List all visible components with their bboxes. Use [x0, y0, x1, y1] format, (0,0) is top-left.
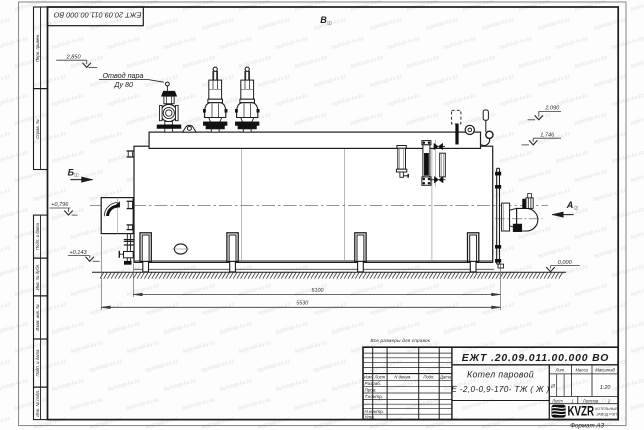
svg-text:teplolab-kv.kz: teplolab-kv.kz — [462, 283, 496, 298]
svg-text:+0,796: +0,796 — [51, 202, 69, 208]
svg-text:teplolab-kv.kz: teplolab-kv.kz — [313, 74, 347, 89]
svg-text:А: А — [566, 200, 574, 210]
svg-text:teplolab-kv.kz: teplolab-kv.kz — [257, 74, 291, 89]
svg-text:teplolab-kv.kz: teplolab-kv.kz — [0, 207, 29, 222]
svg-text:teplolab-kv.kz: teplolab-kv.kz — [70, 226, 104, 241]
svg-text:Пров.: Пров. — [365, 388, 377, 393]
svg-text:teplolab-kv.kz: teplolab-kv.kz — [294, 397, 328, 412]
svg-text:teplolab-kv.kz: teplolab-kv.kz — [462, 397, 496, 412]
svg-text:teplolab-kv.kz: teplolab-kv.kz — [145, 17, 179, 32]
svg-text:teplolab-kv.kz: teplolab-kv.kz — [294, 55, 328, 70]
svg-text:teplolab-kv.kz: teplolab-kv.kz — [462, 112, 496, 127]
svg-text:⑵: ⑵ — [574, 204, 579, 211]
svg-text:teplolab-kv.kz: teplolab-kv.kz — [350, 55, 384, 70]
svg-text:teplolab-kv.kz: teplolab-kv.kz — [0, 93, 29, 108]
svg-text:teplolab-kv.kz: teplolab-kv.kz — [369, 302, 403, 317]
svg-text:Котел паровой: Котел паровой — [467, 370, 534, 380]
svg-text:teplolab-kv.kz: teplolab-kv.kz — [238, 340, 272, 355]
svg-text:teplolab-kv.kz: teplolab-kv.kz — [51, 264, 85, 279]
svg-text:teplolab-kv.kz: teplolab-kv.kz — [630, 169, 644, 184]
svg-text:Е -2,0-0,9-170- ТЖ ( Ж ): Е -2,0-0,9-170- ТЖ ( Ж ) — [451, 385, 549, 394]
svg-text:teplolab-kv.kz: teplolab-kv.kz — [89, 245, 123, 260]
svg-text:teplolab-kv.kz: teplolab-kv.kz — [518, 169, 552, 184]
svg-text:teplolab-kv.kz: teplolab-kv.kz — [70, 340, 104, 355]
svg-text:teplolab-kv.kz: teplolab-kv.kz — [0, 416, 11, 430]
svg-text:teplolab-kv.kz: teplolab-kv.kz — [0, 74, 11, 89]
svg-text:teplolab-kv.kz: teplolab-kv.kz — [70, 283, 104, 298]
svg-text:teplolab-kv.kz: teplolab-kv.kz — [593, 17, 627, 32]
svg-text:teplolab-kv.kz: teplolab-kv.kz — [425, 416, 459, 430]
svg-text:ЗАВОД РЭП: ЗАВОД РЭП — [596, 412, 617, 416]
svg-text:teplolab-kv.kz: teplolab-kv.kz — [555, 36, 589, 51]
svg-text:teplolab-kv.kz: teplolab-kv.kz — [630, 283, 644, 298]
svg-text:teplolab-kv.kz: teplolab-kv.kz — [201, 17, 235, 32]
svg-text:teplolab-kv.kz: teplolab-kv.kz — [331, 321, 365, 336]
svg-text:teplolab-kv.kz: teplolab-kv.kz — [70, 112, 104, 127]
svg-text:teplolab-kv.kz: teplolab-kv.kz — [33, 188, 67, 203]
svg-text:teplolab-kv.kz: teplolab-kv.kz — [555, 378, 589, 393]
svg-text:teplolab-kv.kz: teplolab-kv.kz — [89, 359, 123, 374]
svg-text:teplolab-kv.kz: teplolab-kv.kz — [294, 112, 328, 127]
svg-text:teplolab-kv.kz: teplolab-kv.kz — [0, 359, 11, 374]
svg-text:teplolab-kv.kz: teplolab-kv.kz — [555, 93, 589, 108]
svg-text:teplolab-kv.kz: teplolab-kv.kz — [518, 283, 552, 298]
svg-text:teplolab-kv.kz: teplolab-kv.kz — [406, 112, 440, 127]
svg-text:teplolab-kv.kz: teplolab-kv.kz — [182, 55, 216, 70]
svg-text:Ду 80: Ду 80 — [113, 80, 133, 89]
svg-text:teplolab-kv.kz: teplolab-kv.kz — [537, 416, 571, 430]
svg-text:teplolab-kv.kz: teplolab-kv.kz — [387, 36, 421, 51]
svg-text:teplolab-kv.kz: teplolab-kv.kz — [537, 74, 571, 89]
svg-text:Лист: Лист — [551, 398, 563, 403]
svg-text:teplolab-kv.kz: teplolab-kv.kz — [425, 359, 459, 374]
svg-text:Подп. и дата: Подп. и дата — [35, 223, 40, 251]
svg-text:teplolab-kv.kz: teplolab-kv.kz — [201, 302, 235, 317]
svg-text:Все размеры для справок: Все размеры для справок — [371, 338, 431, 343]
svg-text:teplolab-kv.kz: teplolab-kv.kz — [574, 169, 608, 184]
svg-text:teplolab-kv.kz: teplolab-kv.kz — [238, 55, 272, 70]
svg-text:teplolab-kv.kz: teplolab-kv.kz — [387, 93, 421, 108]
svg-text:Масса: Масса — [576, 368, 589, 373]
svg-text:teplolab-kv.kz: teplolab-kv.kz — [145, 74, 179, 89]
svg-text:1,746: 1,746 — [540, 132, 555, 138]
svg-text:teplolab-kv.kz: teplolab-kv.kz — [481, 302, 515, 317]
svg-text:teplolab-kv.kz: teplolab-kv.kz — [611, 378, 644, 393]
svg-text:teplolab-kv.kz: teplolab-kv.kz — [481, 17, 515, 32]
svg-text:И: И — [551, 384, 555, 390]
svg-text:teplolab-kv.kz: teplolab-kv.kz — [219, 264, 253, 279]
svg-text:ЕЖТ .20.09.011.00.000 ВО: ЕЖТ .20.09.011.00.000 ВО — [462, 353, 609, 364]
svg-text:Утв.: Утв. — [365, 415, 375, 420]
svg-text:teplolab-kv.kz: teplolab-kv.kz — [387, 321, 421, 336]
svg-text:teplolab-kv.kz: teplolab-kv.kz — [126, 112, 160, 127]
svg-text:KVZR: KVZR — [568, 403, 595, 418]
svg-text:teplolab-kv.kz: teplolab-kv.kz — [201, 359, 235, 374]
svg-text:teplolab-kv.kz: teplolab-kv.kz — [499, 321, 533, 336]
svg-text:teplolab-kv.kz: teplolab-kv.kz — [331, 378, 365, 393]
svg-text:teplolab-kv.kz: teplolab-kv.kz — [611, 321, 644, 336]
svg-text:teplolab-kv.kz: teplolab-kv.kz — [0, 131, 11, 146]
svg-text:teplolab-kv.kz: teplolab-kv.kz — [294, 340, 328, 355]
svg-text:teplolab-kv.kz: teplolab-kv.kz — [51, 36, 85, 51]
svg-text:teplolab-kv.kz: teplolab-kv.kz — [163, 378, 197, 393]
svg-text:2,850: 2,850 — [66, 54, 82, 60]
svg-text:teplolab-kv.kz: teplolab-kv.kz — [481, 416, 515, 430]
svg-text:teplolab-kv.kz: teplolab-kv.kz — [145, 359, 179, 374]
svg-text:teplolab-kv.kz: teplolab-kv.kz — [350, 283, 384, 298]
svg-text:teplolab-kv.kz: teplolab-kv.kz — [0, 378, 29, 393]
svg-text:teplolab-kv.kz: teplolab-kv.kz — [443, 321, 477, 336]
svg-text:teplolab-kv.kz: teplolab-kv.kz — [406, 55, 440, 70]
svg-text:teplolab-kv.kz: teplolab-kv.kz — [219, 321, 253, 336]
svg-text:teplolab-kv.kz: teplolab-kv.kz — [518, 55, 552, 70]
svg-text:Дата: Дата — [439, 375, 452, 380]
svg-text:Справ. №: Справ. № — [35, 119, 40, 139]
svg-text:teplolab-kv.kz: teplolab-kv.kz — [0, 302, 11, 317]
svg-text:teplolab-kv.kz: teplolab-kv.kz — [89, 302, 123, 317]
svg-text:teplolab-kv.kz: teplolab-kv.kz — [182, 283, 216, 298]
svg-text:Подп. и дата: Подп. и дата — [35, 349, 40, 377]
svg-text:teplolab-kv.kz: teplolab-kv.kz — [555, 321, 589, 336]
svg-text:teplolab-kv.kz: teplolab-kv.kz — [313, 359, 347, 374]
svg-text:teplolab-kv.kz: teplolab-kv.kz — [630, 55, 644, 70]
svg-text:teplolab-kv.kz: teplolab-kv.kz — [518, 112, 552, 127]
svg-text:Инв. № подл.: Инв. № подл. — [35, 390, 40, 417]
svg-text:teplolab-kv.kz: teplolab-kv.kz — [219, 36, 253, 51]
svg-text:Лист: Лист — [374, 375, 386, 380]
svg-text:teplolab-kv.kz: teplolab-kv.kz — [126, 55, 160, 70]
svg-text:teplolab-kv.kz: teplolab-kv.kz — [0, 36, 29, 51]
svg-text:teplolab-kv.kz: teplolab-kv.kz — [201, 416, 235, 430]
svg-text:+0,143: +0,143 — [69, 250, 87, 256]
svg-text:5100: 5100 — [312, 288, 324, 294]
svg-text:Разраб.: Разраб. — [365, 381, 382, 386]
svg-text:teplolab-kv.kz: teplolab-kv.kz — [537, 245, 571, 260]
svg-text:teplolab-kv.kz: teplolab-kv.kz — [0, 150, 29, 165]
svg-text:teplolab-kv.kz: teplolab-kv.kz — [630, 112, 644, 127]
svg-text:teplolab-kv.kz: teplolab-kv.kz — [182, 397, 216, 412]
svg-text:teplolab-kv.kz: teplolab-kv.kz — [425, 17, 459, 32]
svg-text:teplolab-kv.kz: teplolab-kv.kz — [275, 264, 309, 279]
svg-text:teplolab-kv.kz: teplolab-kv.kz — [443, 93, 477, 108]
svg-text:teplolab-kv.kz: teplolab-kv.kz — [275, 321, 309, 336]
svg-text:teplolab-kv.kz: teplolab-kv.kz — [107, 321, 141, 336]
svg-text:1:20: 1:20 — [600, 385, 611, 391]
svg-text:teplolab-kv.kz: teplolab-kv.kz — [126, 397, 160, 412]
svg-text:teplolab-kv.kz: teplolab-kv.kz — [574, 283, 608, 298]
svg-text:teplolab-kv.kz: teplolab-kv.kz — [145, 302, 179, 317]
svg-text:teplolab-kv.kz: teplolab-kv.kz — [182, 340, 216, 355]
svg-text:teplolab-kv.kz: teplolab-kv.kz — [611, 207, 644, 222]
svg-text:teplolab-kv.kz: teplolab-kv.kz — [107, 378, 141, 393]
svg-text:teplolab-kv.kz: teplolab-kv.kz — [611, 36, 644, 51]
svg-text:Подп.: Подп. — [423, 375, 434, 380]
svg-text:teplolab-kv.kz: teplolab-kv.kz — [369, 74, 403, 89]
svg-text:teplolab-kv.kz: teplolab-kv.kz — [537, 17, 571, 32]
svg-text:Формат А3: Формат А3 — [570, 422, 604, 429]
svg-text:teplolab-kv.kz: teplolab-kv.kz — [313, 416, 347, 430]
svg-text:teplolab-kv.kz: teplolab-kv.kz — [275, 378, 309, 393]
svg-text:teplolab-kv.kz: teplolab-kv.kz — [275, 36, 309, 51]
svg-text:Отвод пара: Отвод пара — [102, 71, 143, 80]
svg-text:teplolab-kv.kz: teplolab-kv.kz — [238, 283, 272, 298]
svg-text:teplolab-kv.kz: teplolab-kv.kz — [331, 93, 365, 108]
svg-text:teplolab-kv.kz: teplolab-kv.kz — [593, 74, 627, 89]
svg-text:teplolab-kv.kz: teplolab-kv.kz — [611, 150, 644, 165]
svg-text:teplolab-kv.kz: teplolab-kv.kz — [499, 93, 533, 108]
svg-text:teplolab-kv.kz: teplolab-kv.kz — [574, 112, 608, 127]
svg-text:teplolab-kv.kz: teplolab-kv.kz — [126, 340, 160, 355]
svg-text:Инв. № дубл.: Инв. № дубл. — [35, 264, 40, 290]
svg-text:Изм: Изм — [364, 375, 372, 380]
svg-text:teplolab-kv.kz: teplolab-kv.kz — [257, 17, 291, 32]
svg-text:teplolab-kv.kz: teplolab-kv.kz — [275, 93, 309, 108]
svg-text:teplolab-kv.kz: teplolab-kv.kz — [574, 226, 608, 241]
svg-text:teplolab-kv.kz: teplolab-kv.kz — [499, 36, 533, 51]
svg-text:teplolab-kv.kz: teplolab-kv.kz — [257, 416, 291, 430]
svg-text:teplolab-kv.kz: teplolab-kv.kz — [537, 302, 571, 317]
svg-text:teplolab-kv.kz: teplolab-kv.kz — [593, 302, 627, 317]
svg-text:teplolab-kv.kz: teplolab-kv.kz — [481, 74, 515, 89]
svg-text:teplolab-kv.kz: teplolab-kv.kz — [630, 340, 644, 355]
svg-text:teplolab-kv.kz: teplolab-kv.kz — [593, 188, 627, 203]
svg-text:2,090: 2,090 — [544, 106, 560, 112]
svg-text:teplolab-kv.kz: teplolab-kv.kz — [107, 36, 141, 51]
svg-text:teplolab-kv.kz: teplolab-kv.kz — [257, 359, 291, 374]
svg-text:teplolab-kv.kz: teplolab-kv.kz — [443, 36, 477, 51]
svg-text:N докум.: N докум. — [394, 375, 411, 380]
svg-text:teplolab-kv.kz: teplolab-kv.kz — [257, 302, 291, 317]
svg-text:teplolab-kv.kz: teplolab-kv.kz — [70, 397, 104, 412]
svg-text:5530: 5530 — [296, 301, 308, 307]
svg-text:teplolab-kv.kz: teplolab-kv.kz — [518, 397, 552, 412]
svg-text:teplolab-kv.kz: teplolab-kv.kz — [425, 74, 459, 89]
svg-text:Н.контр.: Н.контр. — [365, 409, 384, 414]
svg-text:⑵: ⑵ — [327, 19, 332, 26]
svg-text:teplolab-kv.kz: teplolab-kv.kz — [0, 264, 29, 279]
svg-text:teplolab-kv.kz: teplolab-kv.kz — [238, 397, 272, 412]
svg-text:0,000: 0,000 — [558, 260, 573, 266]
svg-text:ЕЖТ 20.09.011.00.000 ВО: ЕЖТ 20.09.011.00.000 ВО — [53, 11, 141, 20]
svg-text:teplolab-kv.kz: teplolab-kv.kz — [51, 321, 85, 336]
svg-text:teplolab-kv.kz: teplolab-kv.kz — [611, 93, 644, 108]
svg-text:Т.контр.: Т.контр. — [365, 394, 384, 399]
svg-text:teplolab-kv.kz: teplolab-kv.kz — [51, 150, 85, 165]
svg-text:teplolab-kv.kz: teplolab-kv.kz — [593, 245, 627, 260]
svg-text:teplolab-kv.kz: teplolab-kv.kz — [33, 74, 67, 89]
svg-text:teplolab-kv.kz: teplolab-kv.kz — [0, 188, 11, 203]
svg-text:teplolab-kv.kz: teplolab-kv.kz — [574, 55, 608, 70]
svg-text:teplolab-kv.kz: teplolab-kv.kz — [369, 359, 403, 374]
svg-text:teplolab-kv.kz: teplolab-kv.kz — [630, 397, 644, 412]
svg-text:2: 2 — [607, 398, 611, 403]
svg-text:teplolab-kv.kz: teplolab-kv.kz — [630, 226, 644, 241]
svg-text:teplolab-kv.kz: teplolab-kv.kz — [219, 378, 253, 393]
svg-text:teplolab-kv.kz: teplolab-kv.kz — [462, 55, 496, 70]
svg-text:teplolab-kv.kz: teplolab-kv.kz — [611, 264, 644, 279]
svg-text:teplolab-kv.kz: teplolab-kv.kz — [406, 283, 440, 298]
svg-text:teplolab-kv.kz: teplolab-kv.kz — [593, 131, 627, 146]
svg-text:teplolab-kv.kz: teplolab-kv.kz — [33, 416, 67, 430]
svg-text:teplolab-kv.kz: teplolab-kv.kz — [163, 36, 197, 51]
svg-text:teplolab-kv.kz: teplolab-kv.kz — [145, 416, 179, 430]
svg-text:teplolab-kv.kz: teplolab-kv.kz — [331, 36, 365, 51]
svg-text:teplolab-kv.kz: teplolab-kv.kz — [89, 131, 123, 146]
svg-text:Перв. примен.: Перв. примен. — [35, 34, 40, 63]
svg-text:КОТЕЛЬНЫЙ: КОТЕЛЬНЫЙ — [595, 407, 618, 411]
svg-text:Лит.: Лит. — [554, 368, 565, 373]
svg-text:teplolab-kv.kz: teplolab-kv.kz — [425, 302, 459, 317]
svg-text:teplolab-kv.kz: teplolab-kv.kz — [313, 302, 347, 317]
svg-text:teplolab-kv.kz: teplolab-kv.kz — [126, 283, 160, 298]
svg-text:teplolab-kv.kz: teplolab-kv.kz — [0, 17, 11, 32]
svg-text:⑵: ⑵ — [74, 172, 79, 179]
svg-text:Взам. инв. №: Взам. инв. № — [35, 304, 40, 331]
svg-text:teplolab-kv.kz: teplolab-kv.kz — [369, 17, 403, 32]
svg-text:teplolab-kv.kz: teplolab-kv.kz — [163, 321, 197, 336]
svg-text:teplolab-kv.kz: teplolab-kv.kz — [51, 378, 85, 393]
svg-text:teplolab-kv.kz: teplolab-kv.kz — [630, 0, 644, 13]
svg-text:teplolab-kv.kz: teplolab-kv.kz — [0, 321, 29, 336]
svg-text:teplolab-kv.kz: teplolab-kv.kz — [350, 112, 384, 127]
svg-text:teplolab-kv.kz: teplolab-kv.kz — [555, 150, 589, 165]
svg-text:teplolab-kv.kz: teplolab-kv.kz — [107, 93, 141, 108]
svg-text:teplolab-kv.kz: teplolab-kv.kz — [51, 93, 85, 108]
svg-text:teplolab-kv.kz: teplolab-kv.kz — [499, 150, 533, 165]
svg-text:teplolab-kv.kz: teplolab-kv.kz — [89, 416, 123, 430]
svg-text:Масштаб: Масштаб — [595, 368, 615, 373]
svg-text:teplolab-kv.kz: teplolab-kv.kz — [0, 245, 11, 260]
